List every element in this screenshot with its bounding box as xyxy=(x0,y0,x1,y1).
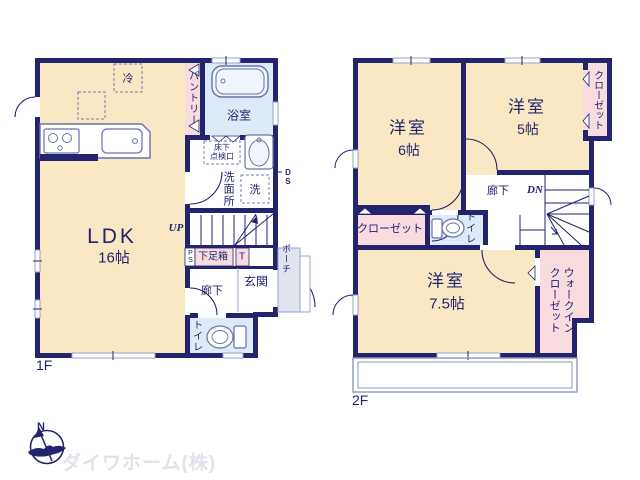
pipe-space-label: PS xyxy=(186,250,194,264)
underfloor-line2: 点検口 xyxy=(210,153,234,162)
closet-bottom-label: クローゼット xyxy=(357,223,423,235)
washer-label: 洗 xyxy=(250,184,261,196)
underfloor-hatch-label: 床下 点検口 xyxy=(210,144,234,162)
bathtub xyxy=(212,66,268,97)
bathroom-label: 浴室 xyxy=(227,109,251,122)
bedroom75-label: 洋室 xyxy=(427,271,465,290)
kitchen-counter xyxy=(40,124,150,161)
closet-top-label: クローゼット xyxy=(591,70,602,130)
bedroom5-room xyxy=(466,63,589,175)
hallway1-label: 廊下 xyxy=(201,285,223,297)
toilet2-fixture xyxy=(432,219,464,238)
bedroom6-label: 洋室 xyxy=(389,118,427,137)
toilet1-fixture xyxy=(207,326,246,348)
washbasin xyxy=(245,135,273,169)
fridge-label: 冷 xyxy=(123,73,134,85)
stairs-down-label: DN xyxy=(527,184,543,196)
washroom-label: 洗面所 xyxy=(222,171,234,207)
toilet1-label: トイレ xyxy=(190,320,201,353)
toilet2-label: トイレ xyxy=(463,212,474,245)
compass-north-label: N xyxy=(37,421,45,433)
company-name: ダイワホーム(株) xyxy=(62,448,216,475)
hallway2-label: 廊下 xyxy=(487,185,509,197)
bedroom5-size-label: 5帖 xyxy=(517,122,539,138)
bedroom5-label: 洋室 xyxy=(508,97,546,116)
floor2-label: 2F xyxy=(352,393,368,409)
pantry-label: パントリー xyxy=(186,71,197,126)
bedroom6-size-label: 6帖 xyxy=(398,143,420,159)
floorplan-page: LDK 16帖 冷 パントリー 浴室 床下 点検口 洗面所 洗 DS UP PS… xyxy=(0,0,640,480)
floor1-label: 1F xyxy=(36,358,52,374)
porch-label: ポーチ xyxy=(281,244,291,274)
shoebox-t-label: T xyxy=(239,251,245,262)
walkin-closet-line1: ウォークイン xyxy=(562,267,574,333)
compass-bird xyxy=(28,445,66,456)
entrance-label: 玄関 xyxy=(244,275,268,288)
ldk-room xyxy=(40,63,185,353)
bedroom75-size-label: 7.5帖 xyxy=(429,297,465,314)
balcony xyxy=(353,358,577,392)
duct-label: DS xyxy=(283,168,292,186)
ldk-size-label: 16帖 xyxy=(98,251,130,268)
walkin-closet-line2: クローゼット xyxy=(548,267,560,333)
compass xyxy=(28,427,66,464)
ldk-label: LDK xyxy=(87,225,137,249)
stairs-1f xyxy=(201,214,273,245)
shoebox-label: 下足箱 xyxy=(198,251,228,262)
sink xyxy=(102,129,142,153)
floor1-plan xyxy=(15,56,315,360)
stairs-up-label: UP xyxy=(169,222,184,234)
kitchen-door-arc xyxy=(15,97,35,117)
washroom-door-arc xyxy=(190,172,222,204)
